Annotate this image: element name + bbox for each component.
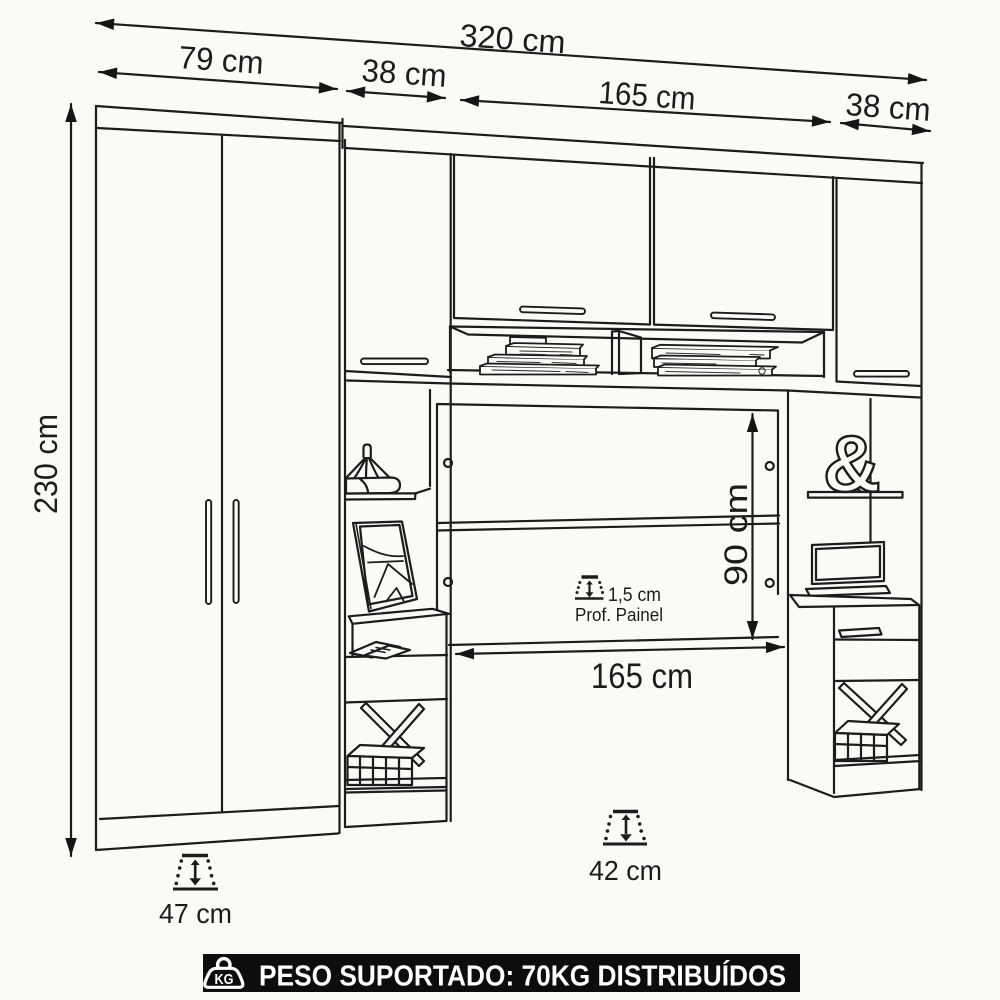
svg-text:90 cm: 90 cm	[718, 483, 754, 586]
svg-text:38 cm: 38 cm	[361, 52, 448, 94]
svg-text:230 cm: 230 cm	[28, 414, 64, 514]
svg-text:1,5 cm: 1,5 cm	[608, 584, 661, 606]
svg-text:79 cm: 79 cm	[178, 39, 265, 81]
svg-text:38 cm: 38 cm	[845, 86, 932, 128]
svg-text:PESO SUPORTADO: 70KG DISTRIBUÍ: PESO SUPORTADO: 70KG DISTRIBUÍDOS	[259, 959, 786, 993]
svg-text:47 cm: 47 cm	[159, 898, 232, 929]
svg-text:165 cm: 165 cm	[598, 74, 697, 117]
svg-text:320 cm: 320 cm	[459, 17, 567, 60]
svg-text:&: &	[823, 419, 881, 508]
svg-text:Prof. Painel: Prof. Painel	[575, 605, 663, 625]
svg-text:KG: KG	[215, 972, 234, 988]
svg-text:42 cm: 42 cm	[589, 855, 662, 886]
svg-text:165 cm: 165 cm	[591, 657, 693, 696]
